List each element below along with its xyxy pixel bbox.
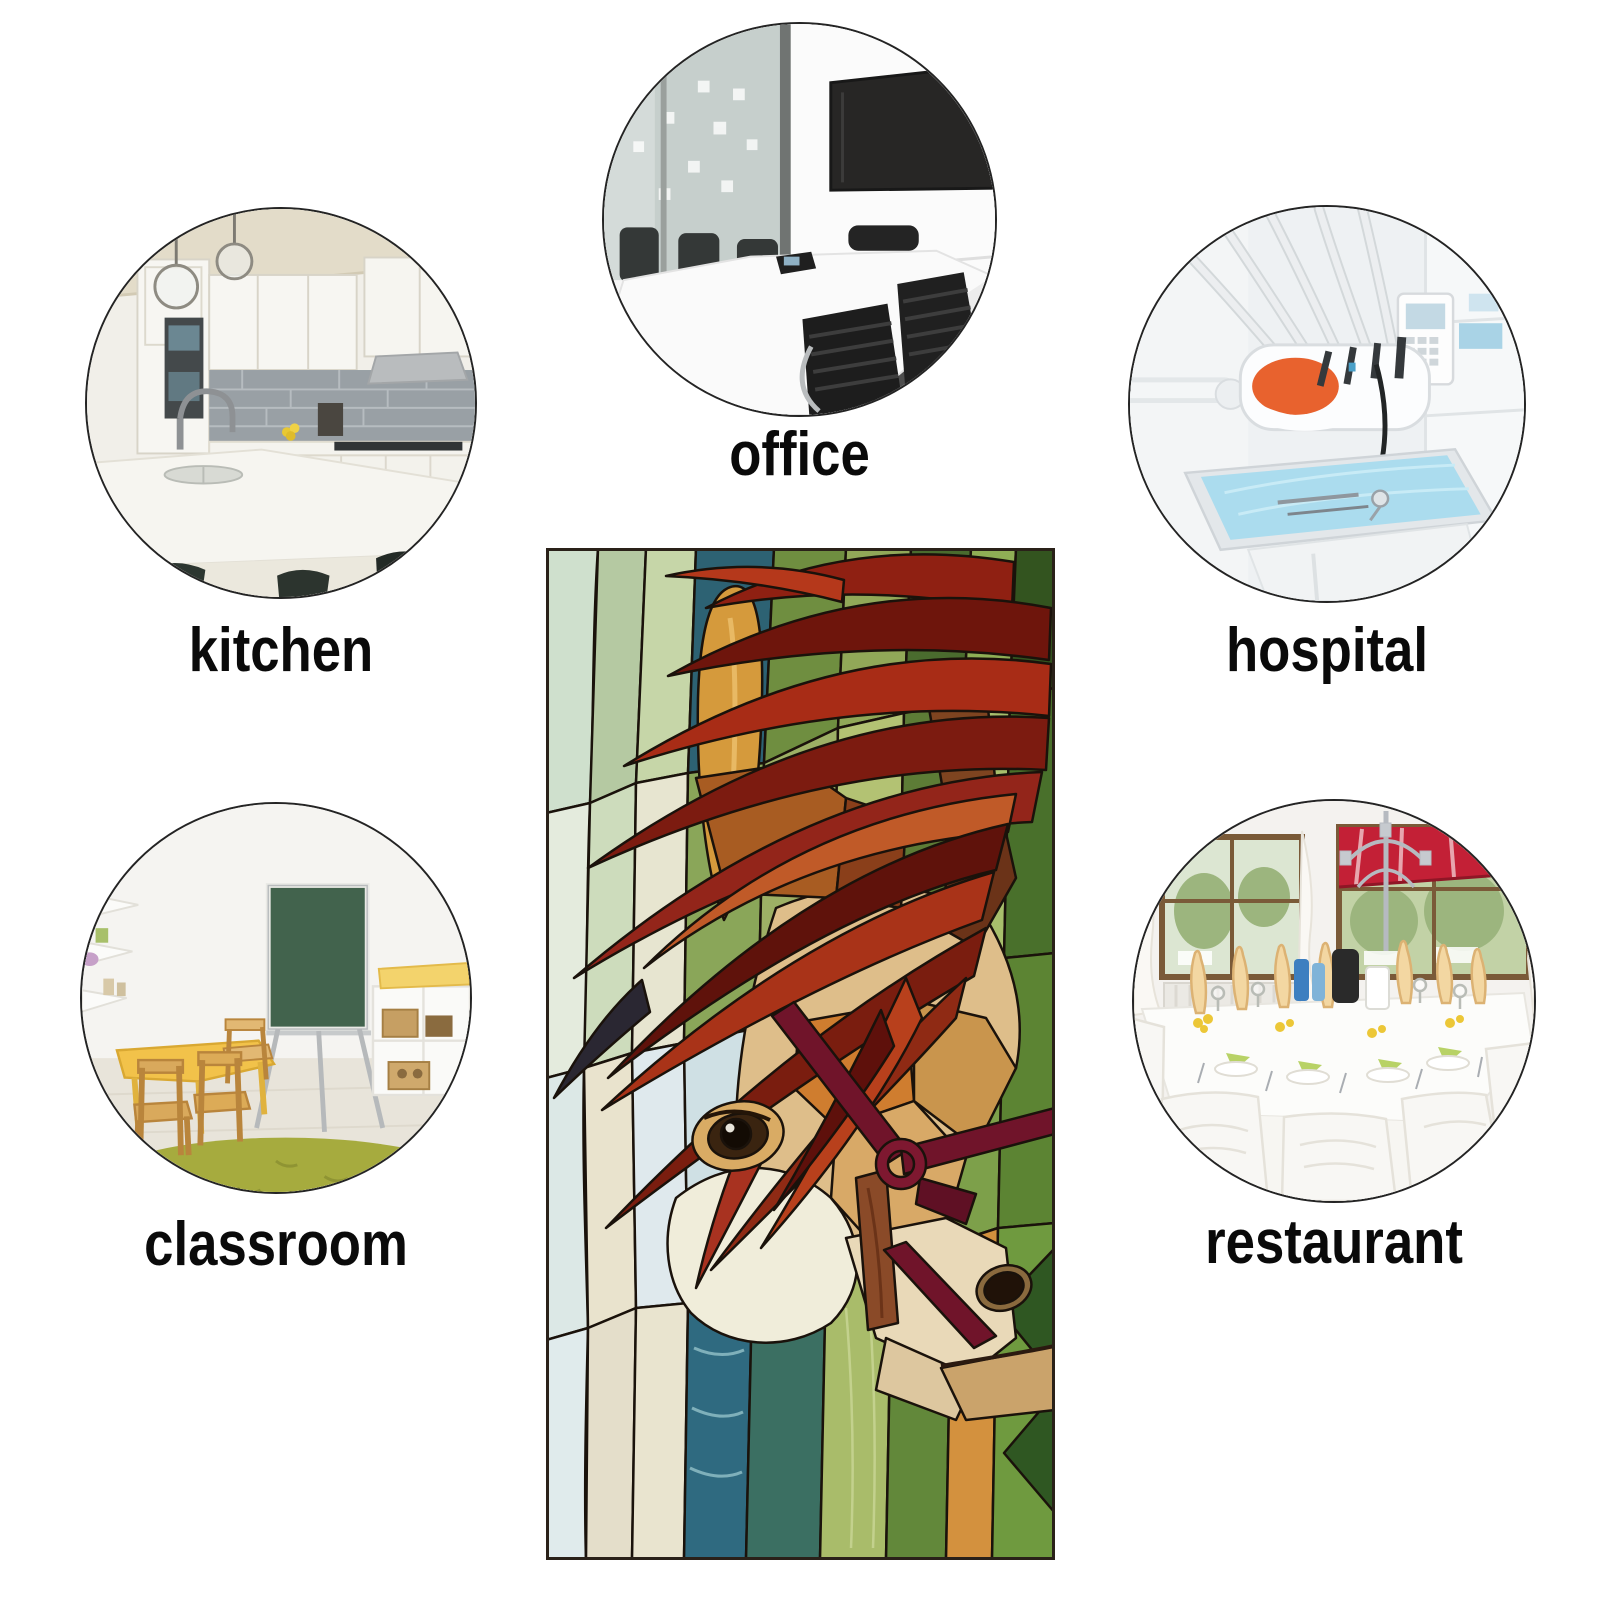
classroom-photo-illustration	[82, 804, 470, 1192]
scene-classroom: classroom	[80, 802, 472, 1194]
hospital-label: hospital	[1158, 620, 1496, 682]
kitchen-photo-illustration	[87, 209, 475, 597]
scene-kitchen: kitchen	[85, 207, 477, 599]
scene-hospital: hospital	[1128, 205, 1526, 603]
classroom-photo	[80, 802, 472, 1194]
kitchen-label: kitchen	[114, 620, 447, 682]
scene-office: office	[602, 22, 997, 417]
stained-glass-horse-illustration	[546, 548, 1055, 1560]
kitchen-photo	[85, 207, 477, 599]
restaurant-photo-illustration	[1134, 801, 1534, 1201]
office-photo	[602, 22, 997, 417]
office-label: office	[632, 424, 968, 486]
restaurant-label: restaurant	[1162, 1212, 1505, 1274]
classroom-label: classroom	[109, 1214, 442, 1276]
restaurant-photo	[1132, 799, 1536, 1203]
stained-glass-panel	[546, 548, 1055, 1560]
hospital-photo	[1128, 205, 1526, 603]
hospital-photo-illustration	[1130, 207, 1524, 601]
product-usage-collage: kitchen	[0, 0, 1600, 1600]
scene-restaurant: restaurant	[1132, 799, 1536, 1203]
office-photo-illustration	[604, 24, 995, 415]
